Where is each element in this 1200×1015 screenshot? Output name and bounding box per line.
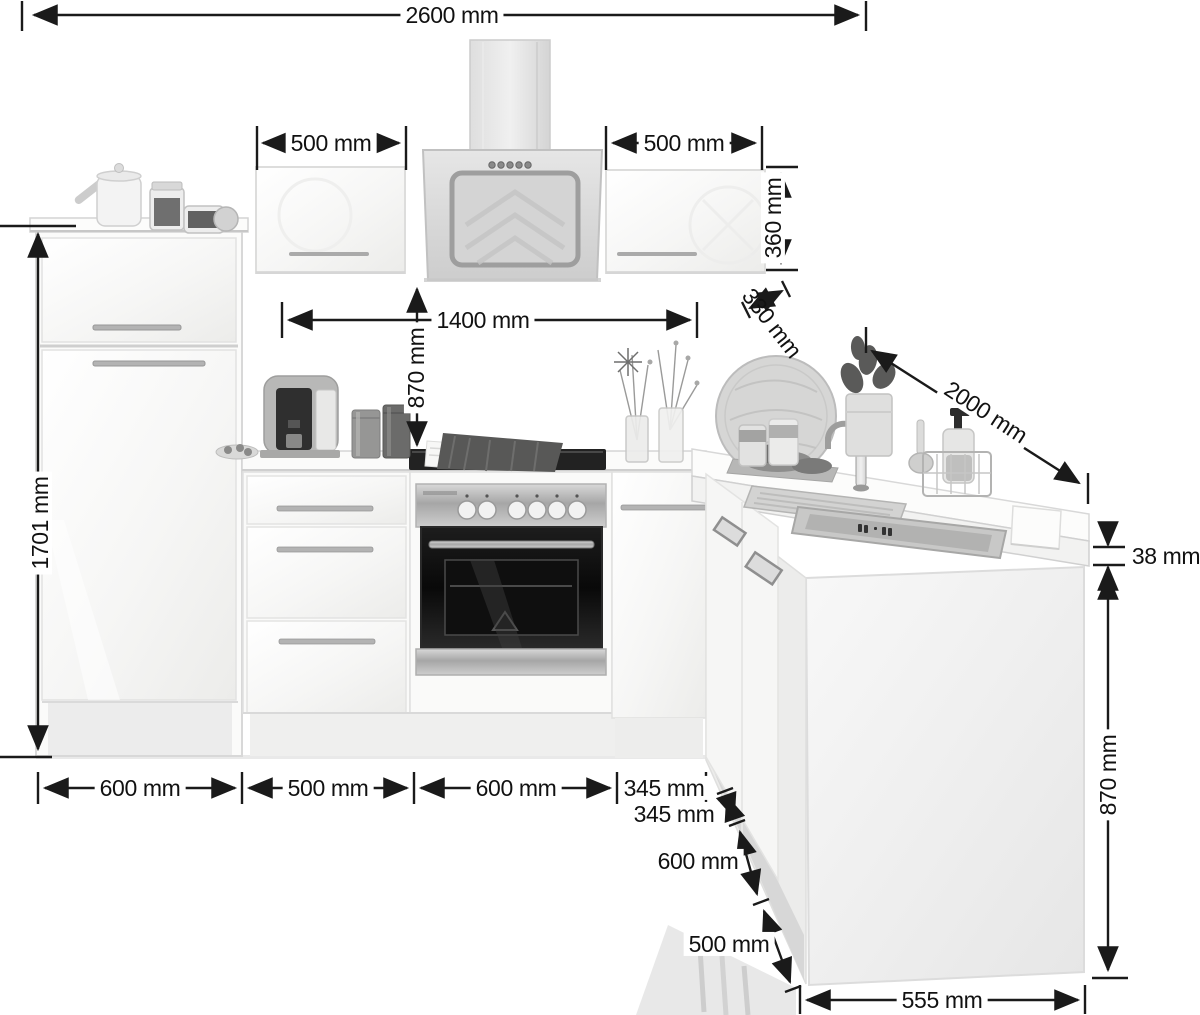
vase-2 [659, 408, 683, 462]
dim-wall-right-label: 500 mm [639, 131, 730, 155]
corner-cabinet-handle [621, 505, 707, 510]
oven-brand-mark [423, 491, 457, 495]
oven-unit [410, 472, 612, 713]
dim-peninsula-width-label: 555 mm [897, 988, 988, 1012]
wall-cabinet-left [256, 167, 405, 274]
dim-base-1-label: 600 mm [95, 776, 186, 800]
decor-towel [425, 433, 563, 472]
dim-tall-height-label: 1701 mm [28, 471, 52, 574]
kitchen-illustration [0, 0, 1200, 1015]
decor-flower-vases [614, 341, 700, 463]
plant-leaves [836, 335, 900, 396]
dim-wall-height-label: 360 mm [761, 173, 785, 264]
base-cabinet-right-of-oven [612, 472, 707, 758]
decor-plant-bag [836, 335, 900, 456]
oven-door-handle [429, 541, 594, 548]
tall-cabinet-plinth [48, 702, 232, 755]
drawer-3-handle [279, 639, 375, 644]
dim-side-1-label: 345 mm [629, 802, 720, 826]
drawer-2 [247, 527, 406, 618]
dim-base-4-label: 345 mm [619, 776, 710, 800]
dim-splash-height-label: 870 mm [404, 323, 428, 414]
dim-base-2-label: 500 mm [283, 776, 374, 800]
wall-cabinet-left-handle [289, 252, 369, 256]
range-hood [423, 40, 602, 282]
decor-sponge-box [1011, 506, 1061, 549]
base-drawer-unit [243, 472, 410, 713]
tall-cabinet [30, 218, 248, 756]
dim-base-height-label: 870 mm [1096, 730, 1120, 821]
decor-cups [739, 419, 798, 466]
decor-coffee-pot-and-jars [73, 164, 238, 234]
decor-soap-dispenser [943, 408, 974, 483]
dim-total-width-label: 2600 mm [400, 3, 503, 27]
drawer-2-handle [277, 547, 373, 552]
decor-canisters [352, 405, 410, 458]
decor-coffee-machine [260, 376, 340, 458]
drawer-3 [247, 621, 406, 713]
dim-wall-left-label: 500 mm [286, 131, 377, 155]
oven-lower-strip [416, 649, 606, 675]
tall-cabinet-upper-handle [93, 325, 181, 330]
dim-base-3-label: 600 mm [471, 776, 562, 800]
dim-side-3-label: 500 mm [684, 932, 775, 956]
coffee-pot [97, 176, 141, 226]
vase-1 [626, 416, 648, 462]
peninsula-end-panel [806, 567, 1084, 985]
dim-wall-run-label: 1400 mm [431, 308, 534, 332]
drawer-1-handle [277, 506, 373, 511]
dim-side-2-label: 600 mm [653, 849, 744, 873]
drawer-1 [247, 476, 406, 524]
tall-cabinet-lower-handle [93, 361, 205, 366]
dim-worktop-thickness-line [1093, 528, 1125, 584]
wall-cabinet-right [606, 170, 766, 274]
flower-starburst [614, 348, 642, 376]
wall-cabinet-right-handle [617, 252, 697, 256]
tall-cabinet-lower-door [42, 350, 236, 700]
kitchen-dimension-diagram: 2600 mm 500 mm 500 mm 360 mm 330 mm 1400… [0, 0, 1200, 1015]
dim-worktop-thickness-label: 38 mm [1127, 544, 1200, 568]
decor-dish-brush [909, 420, 933, 473]
